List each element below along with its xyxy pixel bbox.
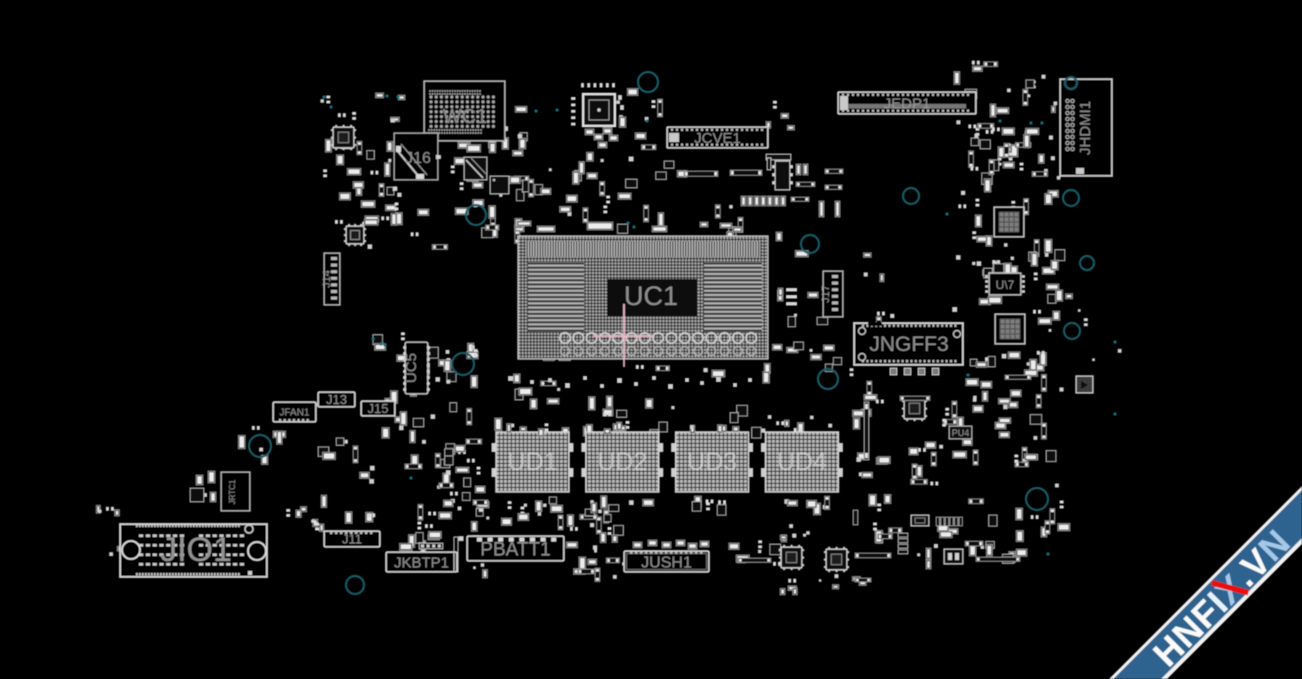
svg-text:UC1: UC1 bbox=[624, 281, 678, 311]
svg-text:JEDP1: JEDP1 bbox=[884, 95, 931, 112]
svg-text:JRTC1: JRTC1 bbox=[228, 479, 237, 504]
svg-text:J14: J14 bbox=[321, 270, 333, 288]
svg-text:J16: J16 bbox=[405, 150, 431, 167]
svg-text:UD4: UD4 bbox=[777, 448, 827, 476]
svg-text:UC5: UC5 bbox=[403, 353, 420, 383]
svg-text:JHDMI1: JHDMI1 bbox=[1077, 101, 1094, 155]
svg-text:JKBTP1: JKBTP1 bbox=[394, 554, 449, 571]
svg-text:JUSH1: JUSH1 bbox=[641, 554, 692, 571]
svg-text:JNGFF3: JNGFF3 bbox=[869, 333, 948, 356]
svg-text:J15: J15 bbox=[368, 401, 389, 416]
svg-text:JIO1: JIO1 bbox=[160, 531, 232, 569]
svg-text:J13: J13 bbox=[326, 392, 347, 407]
svg-text:UD1: UD1 bbox=[507, 448, 557, 476]
svg-text:U\7: U\7 bbox=[996, 278, 1015, 292]
svg-text:PBATT1: PBATT1 bbox=[480, 539, 550, 560]
svg-text:UD2: UD2 bbox=[597, 448, 647, 476]
svg-text:J17: J17 bbox=[820, 285, 832, 303]
svg-text:WC1: WC1 bbox=[443, 106, 487, 128]
svg-text:PU4: PU4 bbox=[952, 428, 970, 438]
svg-text:JCVE1: JCVE1 bbox=[694, 130, 741, 147]
svg-text:JFAN1: JFAN1 bbox=[279, 408, 309, 419]
svg-text:UD3: UD3 bbox=[687, 448, 737, 476]
